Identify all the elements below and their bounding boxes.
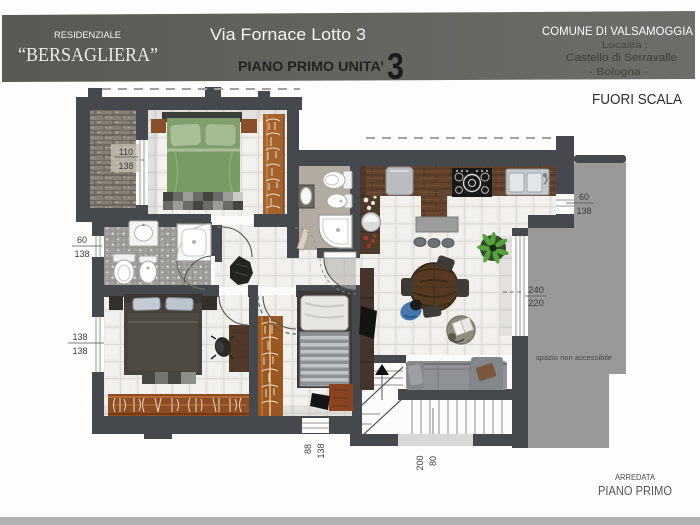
svg-text:PIANO PRIMO: PIANO PRIMO bbox=[598, 483, 672, 498]
svg-text:138: 138 bbox=[576, 206, 591, 216]
svg-text:138: 138 bbox=[72, 346, 87, 356]
svg-text:200: 200 bbox=[415, 455, 425, 470]
svg-text:Via Fornace Lotto 3: Via Fornace Lotto 3 bbox=[210, 26, 366, 44]
svg-text:138: 138 bbox=[118, 161, 133, 171]
svg-text:FUORI SCALA: FUORI SCALA bbox=[592, 92, 682, 108]
svg-text:Castello di Serravalle: Castello di Serravalle bbox=[566, 52, 677, 64]
svg-text:- Bologna -: - Bologna - bbox=[589, 67, 648, 78]
svg-text:80: 80 bbox=[428, 456, 438, 466]
svg-text:ARREDATA: ARREDATA bbox=[615, 472, 655, 482]
svg-text:PIANO PRIMO UNITA’: PIANO PRIMO UNITA’ bbox=[238, 59, 384, 74]
svg-text:110: 110 bbox=[119, 147, 133, 157]
svg-text:60: 60 bbox=[579, 192, 589, 202]
svg-text:240: 240 bbox=[528, 285, 544, 296]
svg-text:“BERSAGLIERA”: “BERSAGLIERA” bbox=[18, 44, 158, 66]
svg-text:60: 60 bbox=[77, 235, 87, 245]
svg-text:COMUNE DI VALSAMOGGIA: COMUNE DI VALSAMOGGIA bbox=[542, 24, 693, 38]
svg-text:138: 138 bbox=[316, 443, 326, 458]
svg-text:88: 88 bbox=[303, 444, 313, 454]
svg-text:220: 220 bbox=[528, 298, 544, 309]
svg-text:138: 138 bbox=[74, 249, 89, 259]
svg-text:3: 3 bbox=[387, 46, 404, 88]
svg-text:138: 138 bbox=[72, 332, 87, 342]
svg-text:RESIDENZIALE: RESIDENZIALE bbox=[54, 30, 121, 41]
svg-text:spazio non accessibile: spazio non accessibile bbox=[536, 353, 612, 362]
svg-text:Località :: Località : bbox=[602, 40, 648, 51]
